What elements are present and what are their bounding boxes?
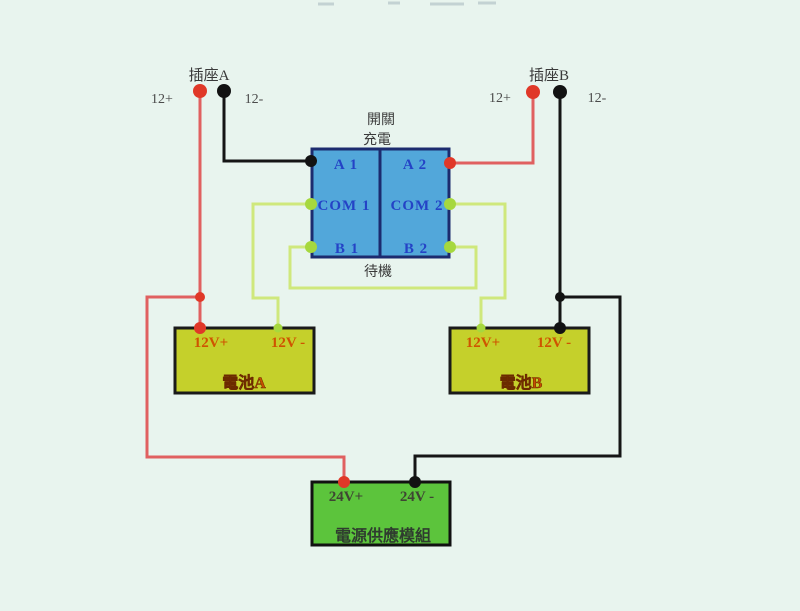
socket-a-neg-label: 12-	[245, 92, 264, 107]
socket-b-label: 插座B	[529, 67, 569, 84]
batteryA-pos-dot	[194, 322, 206, 334]
terminal-dot-com2	[444, 198, 456, 210]
terminal-dot-a1	[305, 155, 317, 167]
socket-a-pos-label: 12+	[151, 92, 173, 107]
socket-b-neg-label: 12-	[588, 91, 607, 106]
power-module-name: 電源供應模組	[335, 526, 431, 545]
batteryA-neg-dot	[274, 324, 283, 333]
terminal-dot-com1	[305, 198, 317, 210]
cell-com2-label: COM 2	[391, 198, 444, 214]
power-pos-label: 24V+	[329, 489, 363, 505]
socket-b-pos-label: 12+	[489, 91, 511, 106]
wire-socketA-neg-to-A1	[224, 91, 312, 161]
switch-charge-label: 充電	[363, 132, 391, 148]
battery-a-name: 電池A	[222, 373, 266, 392]
battery-a-pos-label: 12V+	[194, 335, 228, 351]
batteryB-neg-dot	[554, 322, 566, 334]
batteryB-pos-dot	[477, 324, 486, 333]
battery-b-pos-label: 12V+	[466, 335, 500, 351]
cell-a2-label: A 2	[403, 157, 427, 173]
cell-b1-label: B 1	[335, 241, 359, 257]
wire-COM1-to-batteryA-neg	[253, 204, 312, 328]
switch-standby-label: 待機	[364, 264, 392, 280]
wiring-diagram-page: 插座A 12+ 12- 插座B 12+ 12- 開關 充電 待機 A 1 A 2…	[0, 0, 800, 611]
cropped-title-remnant	[318, 3, 496, 4]
cell-b2-label: B 2	[404, 241, 428, 257]
cell-a1-label: A 1	[334, 157, 358, 173]
battery-b-neg-label: 12V -	[537, 335, 571, 351]
power-pos-dot	[338, 476, 350, 488]
battery-a-neg-label: 12V -	[271, 335, 305, 351]
terminal-dot-b1	[305, 241, 317, 253]
switch-mode-label: 開關	[367, 113, 395, 128]
junction-dot-black	[555, 292, 565, 302]
socketB-pos-pin-dot	[526, 85, 540, 99]
power-neg-label: 24V -	[400, 489, 434, 505]
terminal-dot-a2	[444, 157, 456, 169]
wiring-diagram: 插座A 12+ 12- 插座B 12+ 12- 開關 充電 待機 A 1 A 2…	[0, 0, 800, 611]
socket-a-label: 插座A	[189, 67, 230, 84]
socketA-pos-pin-dot	[193, 84, 207, 98]
battery-b-name: 電池B	[500, 373, 543, 392]
power-neg-dot	[409, 476, 421, 488]
terminal-dot-b2	[444, 241, 456, 253]
cell-com1-label: COM 1	[318, 198, 371, 214]
socketB-neg-pin-dot	[553, 85, 567, 99]
socketA-neg-pin-dot	[217, 84, 231, 98]
junction-dot-red	[195, 292, 205, 302]
